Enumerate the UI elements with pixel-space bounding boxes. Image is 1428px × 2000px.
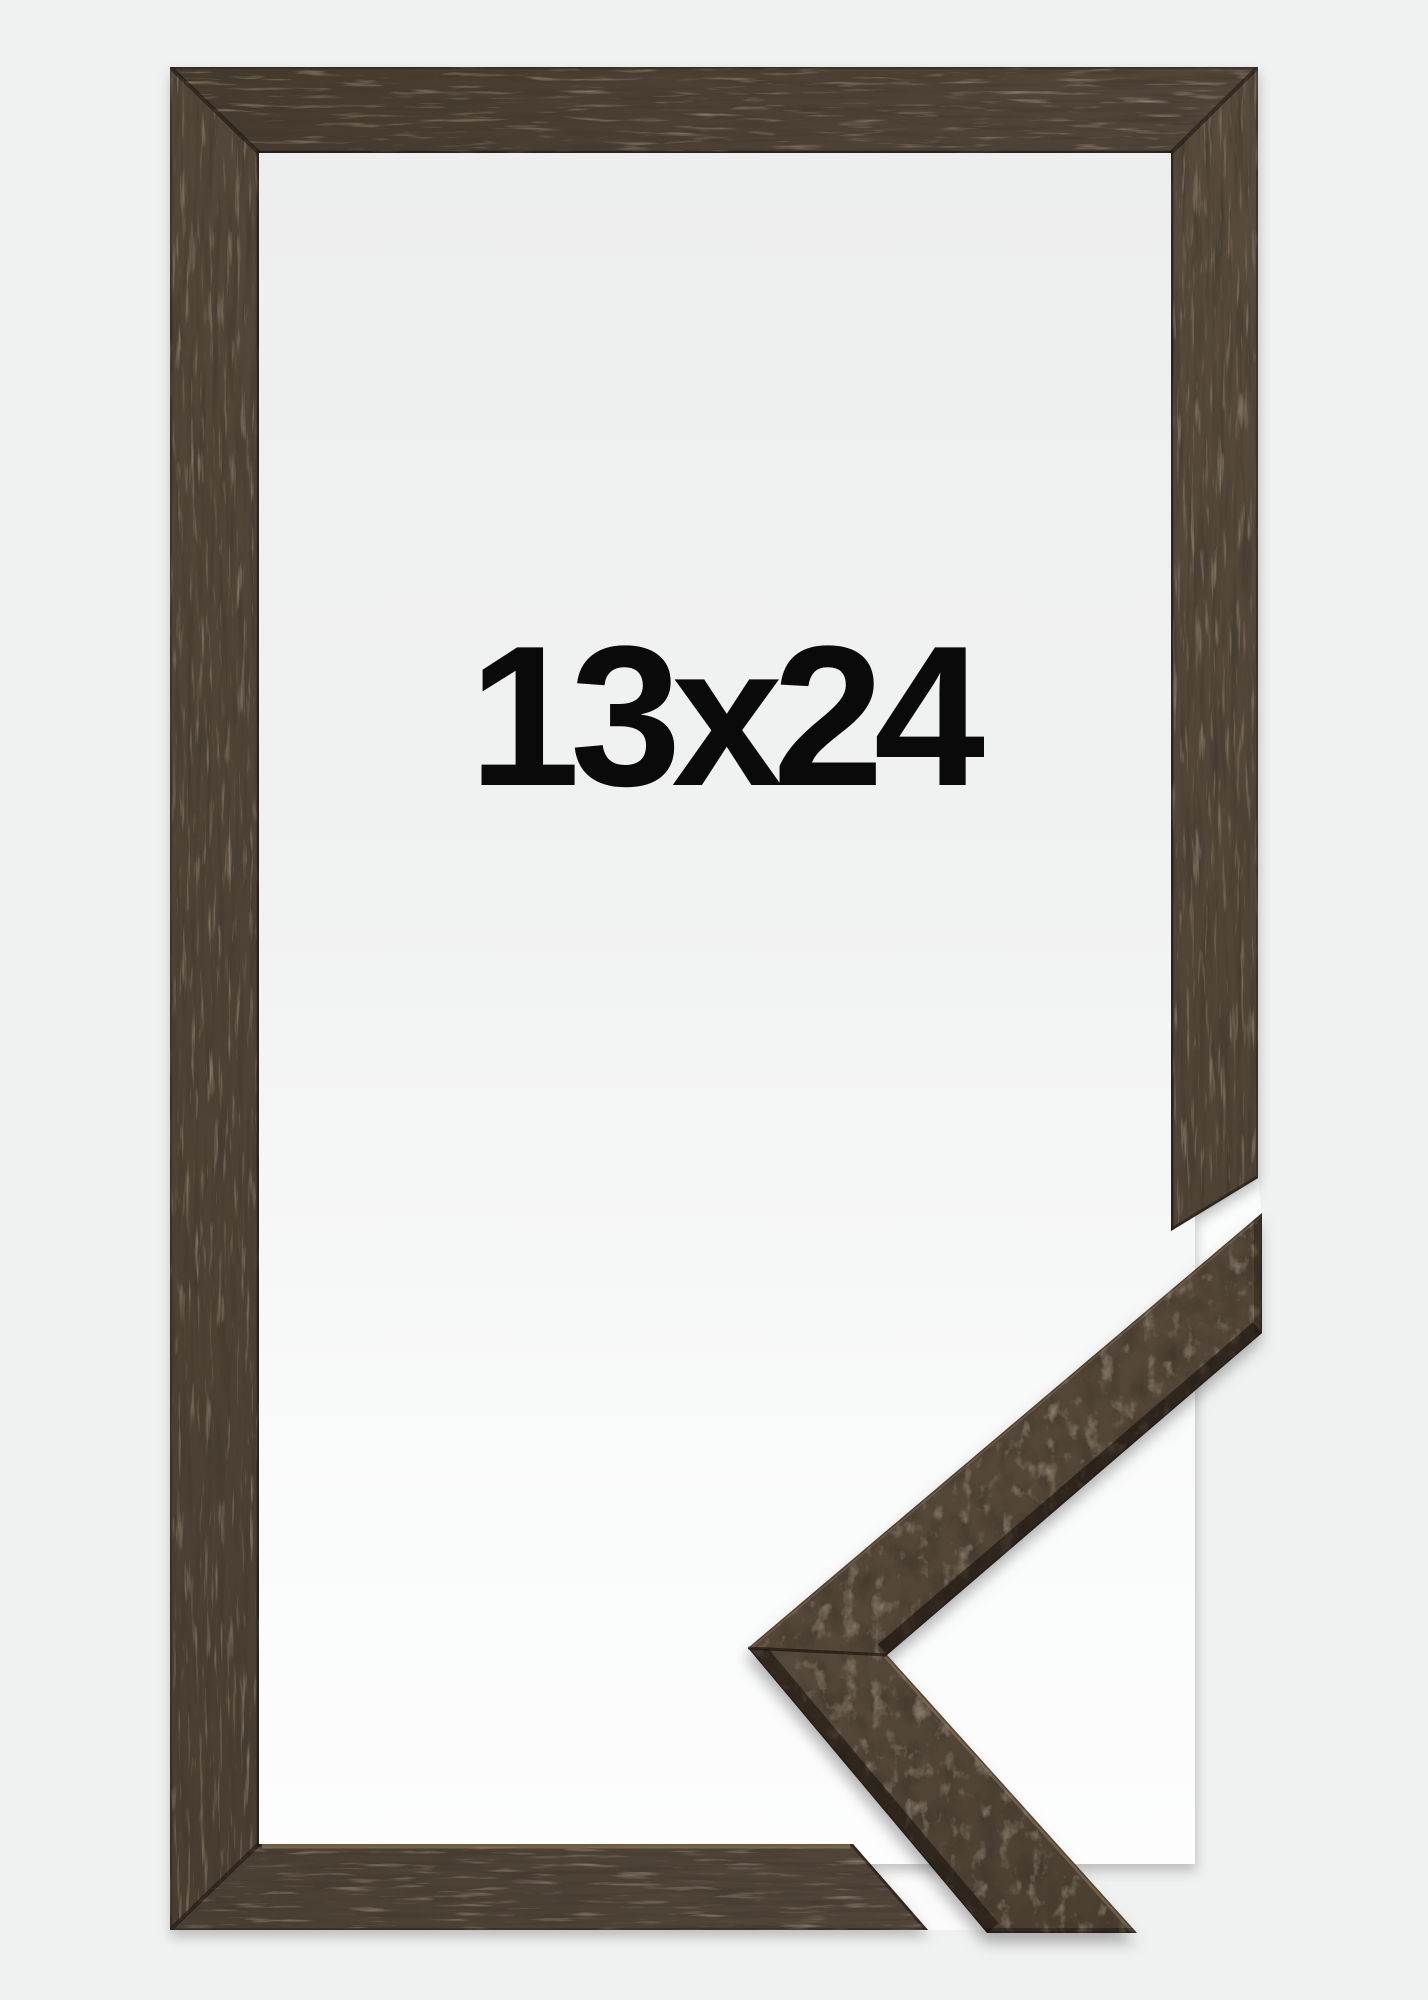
wood-grain-overlay: [170, 67, 259, 1930]
frame-interior-mat: [235, 130, 1195, 1864]
framed-picture-frame-image: [0, 0, 1428, 2000]
product-photo: 13x24: [0, 0, 1428, 2000]
picture-frame: [170, 67, 1258, 1930]
size-label: 13x24: [8, 617, 1428, 817]
wood-grain-overlay: [170, 1844, 928, 1930]
wood-grain-overlay: [170, 67, 1258, 153]
